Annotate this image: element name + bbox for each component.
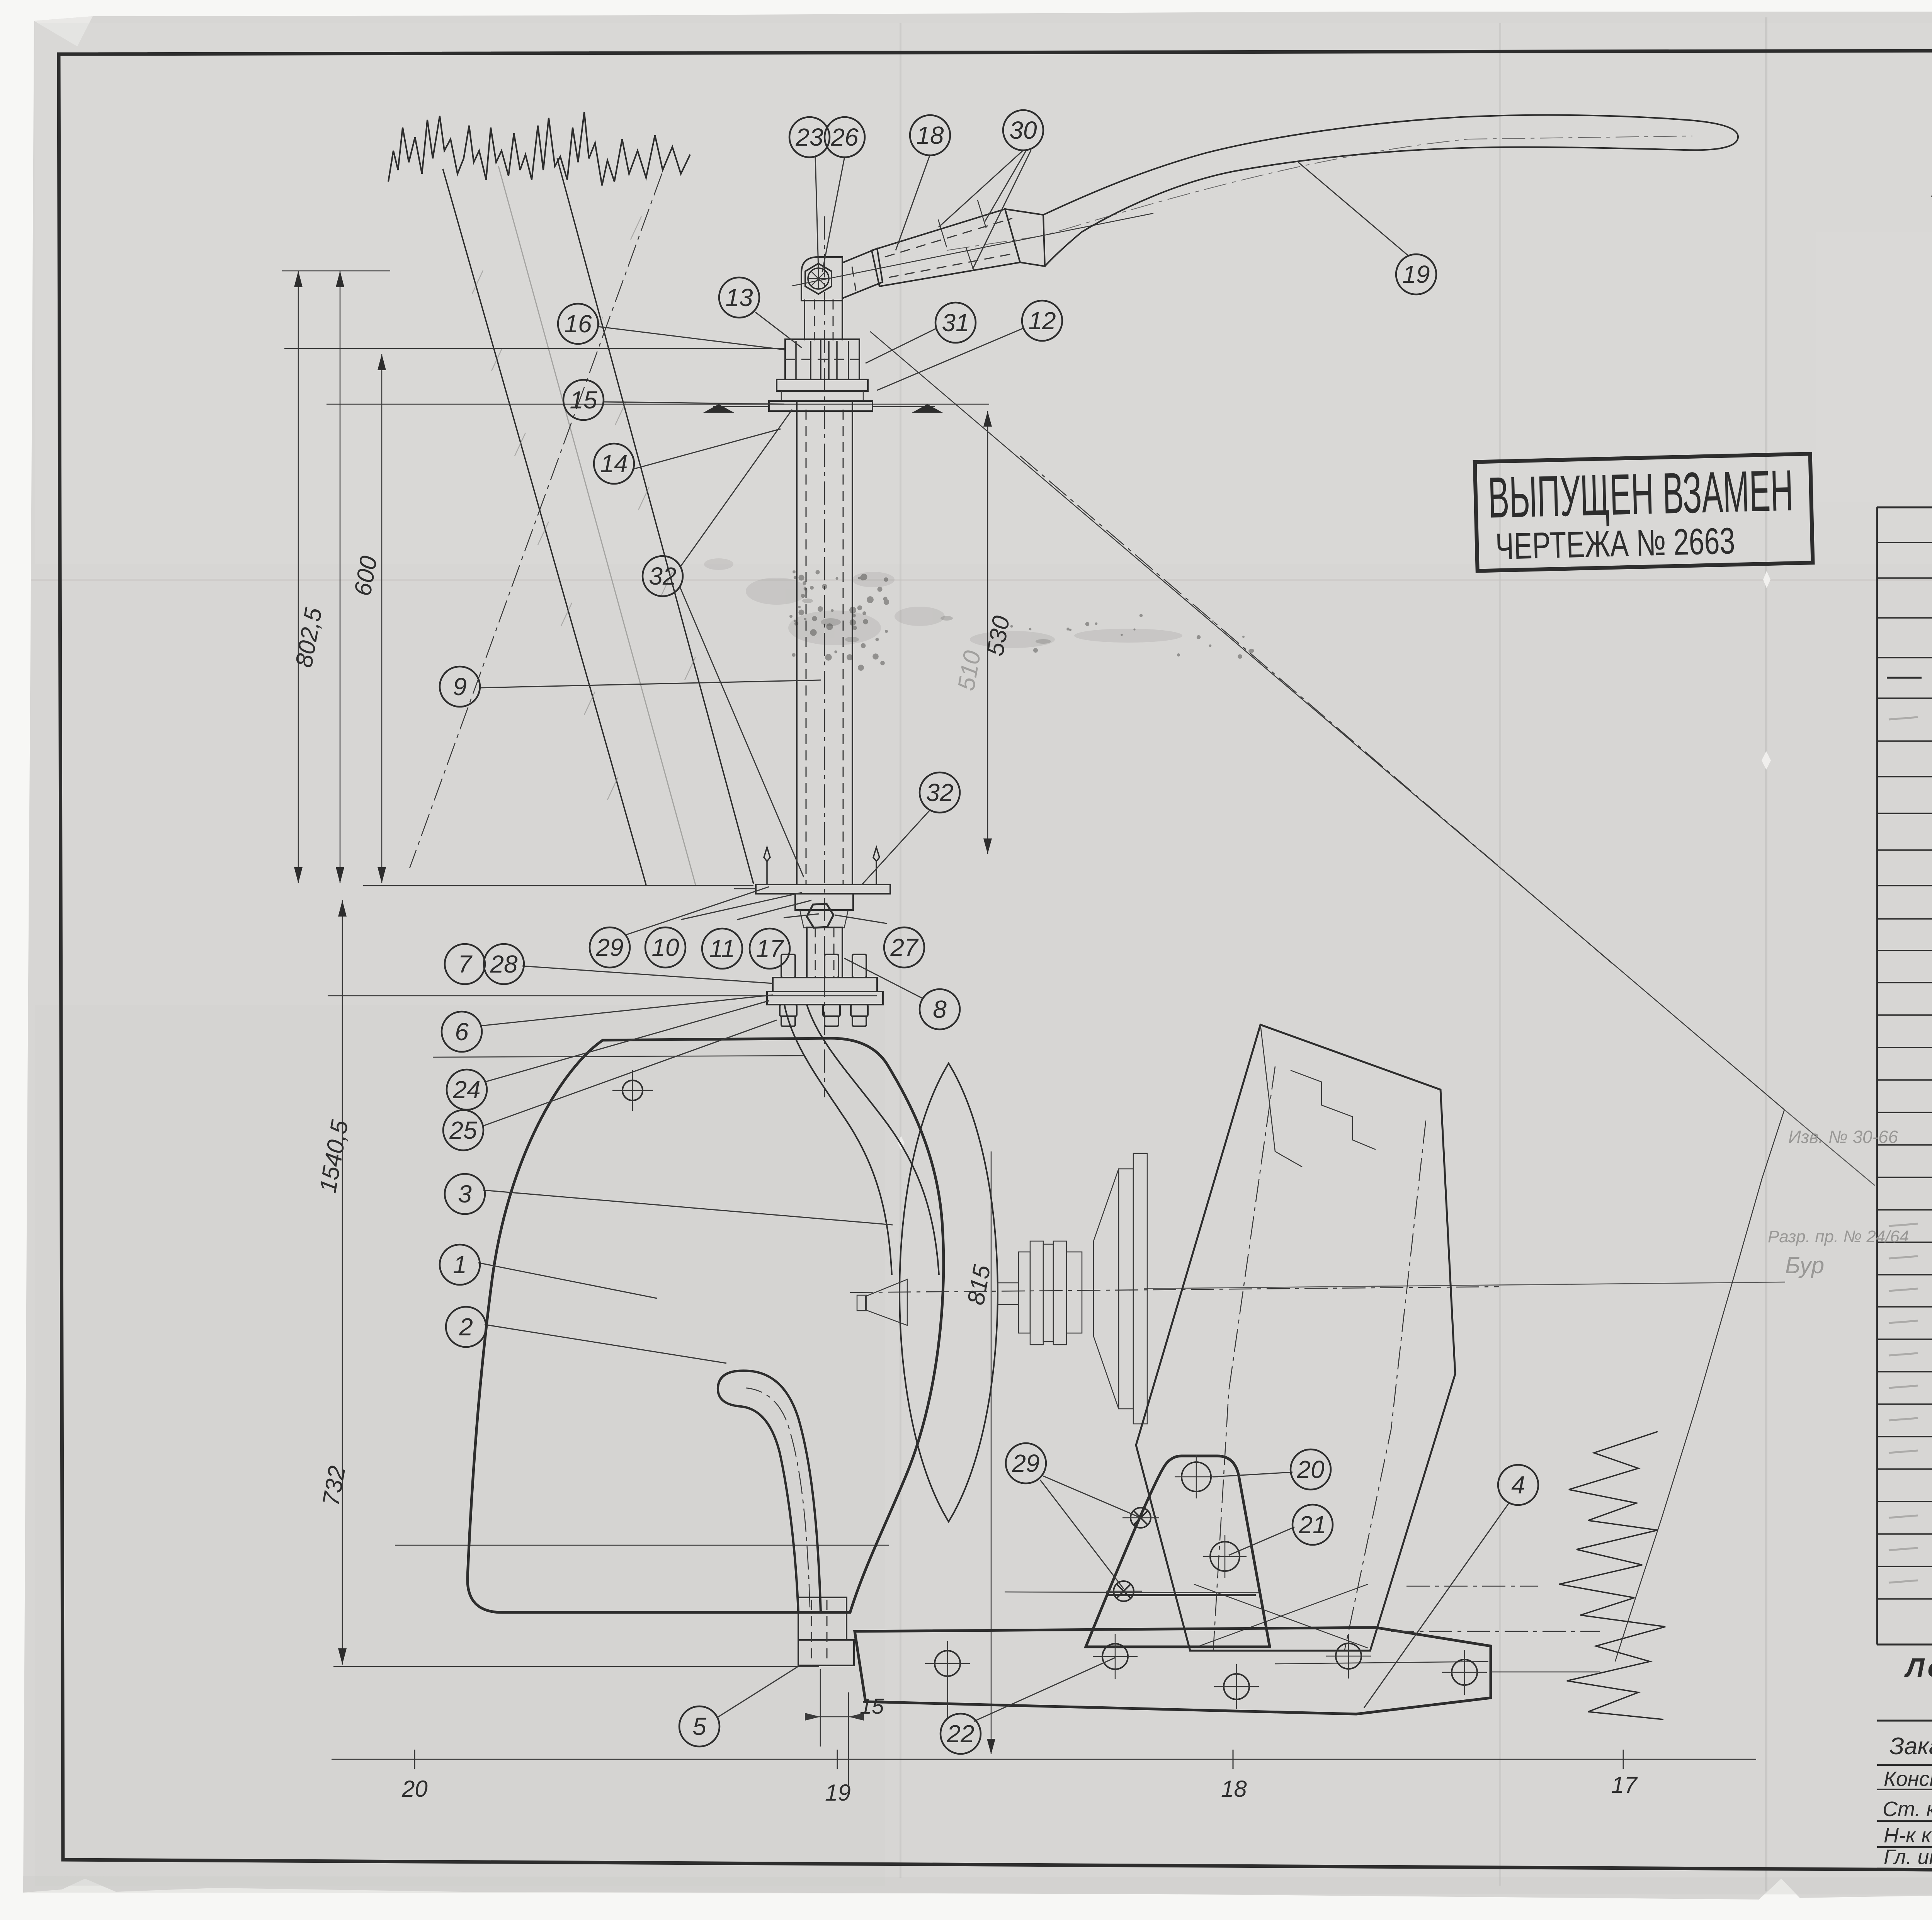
svg-text:10: 10 — [651, 934, 679, 961]
svg-text:30: 30 — [1009, 116, 1037, 144]
svg-text:19: 19 — [825, 1780, 851, 1806]
svg-text:14: 14 — [600, 450, 628, 478]
svg-text:18: 18 — [1221, 1776, 1247, 1802]
svg-text:11: 11 — [709, 935, 735, 963]
svg-text:ЧЕРТЕЖА № 2663: ЧЕРТЕЖА № 2663 — [1495, 520, 1735, 567]
svg-text:15: 15 — [860, 1694, 884, 1718]
svg-text:6: 6 — [455, 1018, 469, 1046]
svg-text:23: 23 — [795, 123, 823, 151]
svg-text:3: 3 — [458, 1180, 472, 1208]
svg-text:17: 17 — [1611, 1772, 1638, 1798]
svg-text:Бур: Бур — [1785, 1252, 1824, 1278]
svg-text:29: 29 — [1012, 1449, 1039, 1477]
svg-text:19: 19 — [1402, 260, 1430, 288]
svg-text:28: 28 — [490, 950, 518, 978]
svg-text:13: 13 — [725, 284, 753, 311]
svg-text:29: 29 — [595, 934, 623, 961]
svg-text:18: 18 — [916, 121, 944, 149]
svg-text:31: 31 — [942, 309, 969, 337]
svg-text:ВЫПУЩЕН ВЗАМЕН: ВЫПУЩЕН ВЗАМЕН — [1487, 457, 1794, 530]
svg-text:1: 1 — [453, 1251, 467, 1279]
svg-text:5: 5 — [692, 1713, 706, 1740]
svg-text:12: 12 — [1028, 307, 1056, 335]
svg-text:Ст. констр.: Ст. констр. — [1883, 1798, 1932, 1821]
svg-text:8: 8 — [933, 995, 947, 1023]
svg-text:21: 21 — [1298, 1511, 1326, 1539]
svg-text:2: 2 — [459, 1313, 473, 1341]
svg-text:Лодка типа: Лодка типа — [1904, 1653, 1932, 1683]
svg-text:32: 32 — [649, 562, 676, 590]
svg-text:Заказ: Заказ — [1889, 1733, 1932, 1760]
svg-text:9: 9 — [453, 673, 467, 701]
svg-text:15: 15 — [570, 386, 597, 414]
svg-text:Гл. инж.: Гл. инж. — [1884, 1845, 1932, 1869]
svg-text:4: 4 — [1511, 1471, 1525, 1499]
svg-text:7: 7 — [458, 950, 473, 978]
svg-text:Разр. пр. № 24/64: Разр. пр. № 24/64 — [1768, 1227, 1909, 1246]
svg-text:20: 20 — [1296, 1456, 1325, 1483]
svg-text:32: 32 — [926, 779, 953, 806]
svg-text:1. Под планку ( дет. 10 и: 1. Под планку ( дет. 10 и дет. 14) проло… — [1930, 175, 1932, 202]
svg-text:24: 24 — [452, 1076, 480, 1104]
svg-text:16: 16 — [564, 310, 592, 338]
svg-text:Н-к к.т.о: Н-к к.т.о — [1884, 1824, 1932, 1847]
svg-text:Изв. № 30-66: Изв. № 30-66 — [1788, 1127, 1898, 1147]
svg-text:17: 17 — [756, 935, 784, 963]
svg-text:25: 25 — [449, 1116, 477, 1144]
svg-text:Конструкт.: Конструкт. — [1884, 1767, 1932, 1791]
svg-text:26: 26 — [830, 123, 859, 151]
svg-text:27: 27 — [890, 934, 919, 961]
svg-text:20: 20 — [401, 1776, 428, 1802]
svg-text:22: 22 — [946, 1720, 974, 1748]
